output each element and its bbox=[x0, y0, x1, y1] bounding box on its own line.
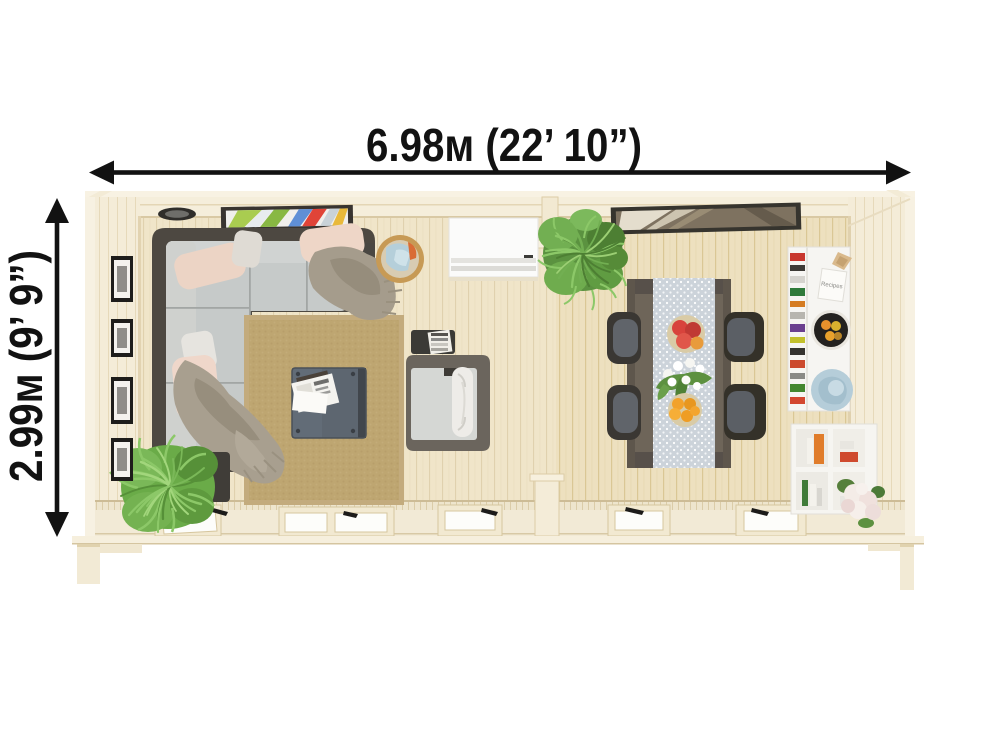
svg-text:2.99м (9’ 9”): 2.99м (9’ 9”) bbox=[0, 250, 52, 482]
svg-text:6.98м (22’ 10”): 6.98м (22’ 10”) bbox=[366, 119, 642, 171]
